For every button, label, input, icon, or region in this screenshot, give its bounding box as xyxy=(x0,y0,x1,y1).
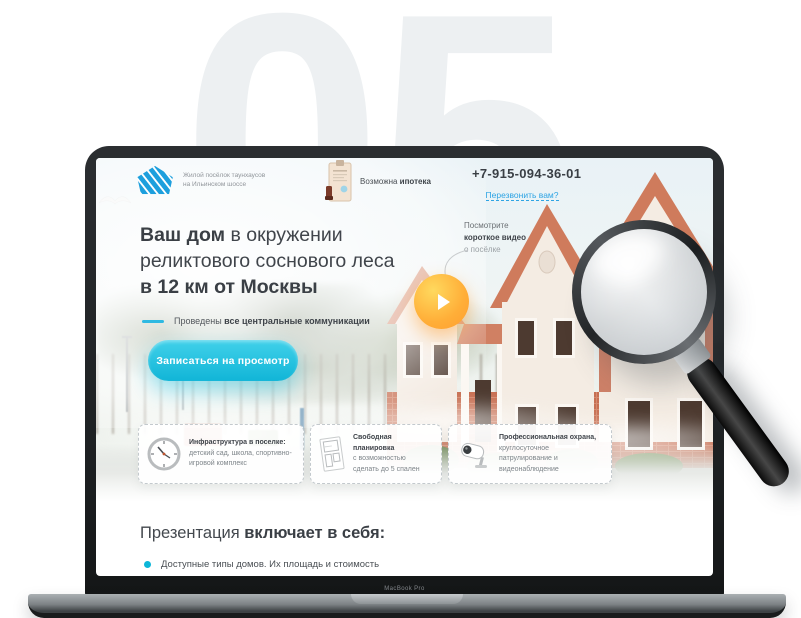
feature-card-layout: Свободная планировкас возможностью сдела… xyxy=(310,424,442,484)
main-headline: Ваш дом в окружении реликтового сосновог… xyxy=(140,222,394,300)
device-label: MacBook Pro xyxy=(85,586,724,592)
play-icon xyxy=(438,294,450,310)
bullet-icon xyxy=(144,561,151,568)
laptop-screen: Жилой посёлок таунхаусов на Ильинском шо… xyxy=(96,158,713,576)
site-logo[interactable]: Жилой посёлок таунхаусов на Ильинском шо… xyxy=(136,165,265,195)
feature-card-security: Профессиональная охрана,круглосуточное п… xyxy=(448,424,612,484)
accent-dash xyxy=(142,320,164,323)
presentation-list-item: Доступные типы домов. Их площадь и стоим… xyxy=(144,559,379,570)
video-note: Посмотрите короткое видео о посёлке xyxy=(464,220,526,256)
magnifier-lens xyxy=(572,220,716,364)
feature-card-infrastructure: Инфраструктура в поселке:детский сад, шк… xyxy=(138,424,304,484)
communications-note: Проведены все центральные коммуникации xyxy=(142,316,370,326)
laptop-frame: Жилой посёлок таунхаусов на Ильинском шо… xyxy=(85,146,724,595)
house-logo-icon xyxy=(136,165,174,195)
callback-link[interactable]: Перезвонить вам? xyxy=(472,185,572,203)
mortgage-document-icon xyxy=(324,158,354,204)
presentation-heading: Презентация включает в себя: xyxy=(140,524,385,543)
phone-number[interactable]: +7-915-094-36-01 xyxy=(472,166,581,181)
play-video-button[interactable] xyxy=(414,274,469,329)
security-camera-icon xyxy=(457,437,491,471)
logo-text: Жилой посёлок таунхаусов на Ильинском шо… xyxy=(183,171,265,190)
laptop-notch xyxy=(351,594,463,604)
mortgage-label: Возможна ипотека xyxy=(360,177,431,186)
signup-viewing-button[interactable]: Записаться на просмотр xyxy=(148,340,298,381)
magnifier-glass xyxy=(581,229,707,355)
floor-plan-icon xyxy=(319,436,345,472)
laptop-base xyxy=(28,594,786,618)
clock-icon xyxy=(147,437,181,471)
